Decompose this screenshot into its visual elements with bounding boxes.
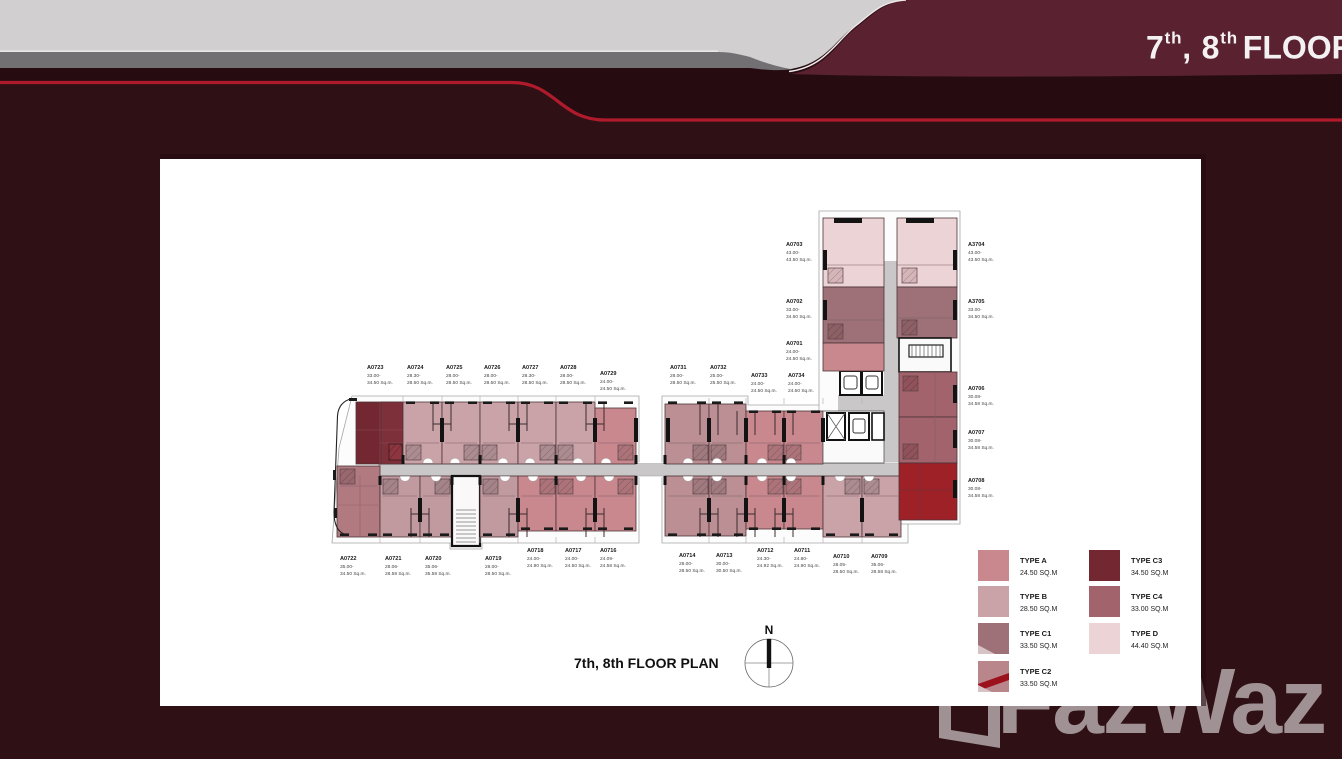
svg-text:A0718: A0718: [527, 548, 543, 554]
svg-text:28.58 Sq.m.: 28.58 Sq.m.: [871, 569, 897, 575]
svg-text:A0719: A0719: [485, 556, 501, 562]
svg-text:33.50 SQ.M: 33.50 SQ.M: [1020, 681, 1058, 688]
svg-text:A0729: A0729: [600, 371, 616, 377]
svg-text:28.30-: 28.30-: [407, 373, 421, 379]
svg-text:A0720: A0720: [425, 556, 441, 562]
svg-text:TYPE D: TYPE D: [1131, 629, 1159, 638]
svg-text:A0734: A0734: [788, 373, 805, 379]
svg-text:43.50 Sq.m.: 43.50 Sq.m.: [968, 257, 994, 263]
svg-text:28.50 Sq.m.: 28.50 Sq.m.: [522, 380, 548, 386]
svg-text:43.00-: 43.00-: [968, 250, 982, 256]
svg-text:35.58 Sq.m.: 35.58 Sq.m.: [425, 571, 451, 577]
svg-text:A0708: A0708: [968, 478, 984, 484]
svg-text:7th, 8th FLOOR PLAN: 7th, 8th FLOOR PLAN: [574, 655, 719, 671]
svg-text:A0713: A0713: [716, 553, 732, 559]
svg-text:28.00-: 28.00-: [484, 373, 498, 379]
svg-text:34.50 Sq.m.: 34.50 Sq.m.: [367, 380, 393, 386]
svg-text:28.50 Sq.m.: 28.50 Sq.m.: [446, 380, 472, 386]
svg-text:34.50 Sq.m.: 34.50 Sq.m.: [786, 314, 812, 320]
svg-text:28.05-: 28.05-: [833, 562, 847, 568]
svg-text:A0709: A0709: [871, 554, 887, 560]
svg-text:33.50 SQ.M: 33.50 SQ.M: [1020, 643, 1058, 650]
svg-text:24.58 Sq.m.: 24.58 Sq.m.: [600, 563, 626, 569]
svg-text:A3705: A3705: [968, 299, 984, 305]
svg-text:A0706: A0706: [968, 386, 984, 392]
svg-text:35.06-: 35.06-: [425, 564, 439, 570]
svg-text:28.50 Sq.m.: 28.50 Sq.m.: [679, 568, 705, 574]
svg-text:35.00-: 35.00-: [340, 564, 354, 570]
svg-text:24.92 Sq.m.: 24.92 Sq.m.: [757, 563, 783, 569]
svg-text:A0714: A0714: [679, 553, 696, 559]
svg-text:24.80-: 24.80-: [794, 556, 808, 562]
svg-text:A0717: A0717: [565, 548, 581, 554]
svg-text:43.00-: 43.00-: [786, 250, 800, 256]
svg-text:28.50 Sq.m.: 28.50 Sq.m.: [670, 380, 696, 386]
svg-text:A0724: A0724: [407, 365, 424, 371]
svg-text:44.40 SQ.M: 44.40 SQ.M: [1131, 643, 1169, 650]
svg-text:28.30-: 28.30-: [522, 373, 536, 379]
svg-text:TYPE A: TYPE A: [1020, 556, 1047, 565]
svg-text:28.06-: 28.06-: [385, 564, 399, 570]
svg-text:24.00-: 24.00-: [751, 381, 765, 387]
svg-text:30.08-: 30.08-: [968, 438, 982, 444]
svg-text:24.00-: 24.00-: [565, 556, 579, 562]
svg-text:24.90 Sq.m.: 24.90 Sq.m.: [794, 563, 820, 569]
svg-text:28.00-: 28.00-: [485, 564, 499, 570]
svg-text:A0707: A0707: [968, 430, 984, 436]
svg-text:28.50 Sq.m.: 28.50 Sq.m.: [407, 380, 433, 386]
svg-text:24.00-: 24.00-: [600, 379, 614, 385]
svg-text:34.50 Sq.m.: 34.50 Sq.m.: [340, 571, 366, 577]
svg-text:TYPE C4: TYPE C4: [1131, 592, 1163, 601]
svg-text:28.50 Sq.m.: 28.50 Sq.m.: [485, 571, 511, 577]
svg-text:28.00-: 28.00-: [679, 561, 693, 567]
svg-text:A0711: A0711: [794, 548, 810, 554]
svg-text:24.00-: 24.00-: [788, 381, 802, 387]
svg-text:A0702: A0702: [786, 299, 802, 305]
svg-text:A0725: A0725: [446, 365, 462, 371]
svg-text:A0721: A0721: [385, 556, 401, 562]
svg-text:A0722: A0722: [340, 556, 356, 562]
svg-text:24.50 Sq.m.: 24.50 Sq.m.: [600, 386, 626, 392]
svg-text:24.00-: 24.00-: [786, 349, 800, 355]
svg-text:A0723: A0723: [367, 365, 383, 371]
svg-text:43.50 Sq.m.: 43.50 Sq.m.: [786, 257, 812, 263]
svg-text:A0716: A0716: [600, 548, 616, 554]
svg-text:28.50 SQ.M: 28.50 SQ.M: [1020, 606, 1058, 613]
svg-text:24.90 Sq.m.: 24.90 Sq.m.: [527, 563, 553, 569]
svg-text:24.50 Sq.m.: 24.50 Sq.m.: [786, 356, 812, 362]
svg-text:A0703: A0703: [786, 242, 802, 248]
svg-text:24.50 Sq.m.: 24.50 Sq.m.: [565, 563, 591, 569]
svg-text:35.06-: 35.06-: [871, 562, 885, 568]
svg-text:33.00 SQ.M: 33.00 SQ.M: [1131, 606, 1169, 613]
svg-text:A0712: A0712: [757, 548, 773, 554]
svg-text:TYPE C3: TYPE C3: [1131, 556, 1162, 565]
svg-text:30.08-: 30.08-: [968, 486, 982, 492]
svg-text:TYPE C1: TYPE C1: [1020, 629, 1051, 638]
svg-text:34.50 Sq.m.: 34.50 Sq.m.: [968, 314, 994, 320]
svg-text:A0732: A0732: [710, 365, 726, 371]
svg-text:TYPE C2: TYPE C2: [1020, 667, 1051, 676]
svg-text:28.50 Sq.m.: 28.50 Sq.m.: [833, 569, 859, 575]
svg-text:A0728: A0728: [560, 365, 576, 371]
svg-text:TYPE B: TYPE B: [1020, 592, 1048, 601]
svg-text:28.58 Sq.m.: 28.58 Sq.m.: [385, 571, 411, 577]
svg-text:N: N: [765, 623, 774, 637]
svg-text:24.00-: 24.00-: [527, 556, 541, 562]
svg-text:30.00-: 30.00-: [716, 561, 730, 567]
svg-text:24.50 SQ.M: 24.50 SQ.M: [1020, 570, 1058, 577]
svg-text:A0726: A0726: [484, 365, 500, 371]
svg-text:A0733: A0733: [751, 373, 767, 379]
svg-text:28.50 Sq.m.: 28.50 Sq.m.: [484, 380, 510, 386]
svg-text:25.00-: 25.00-: [710, 373, 724, 379]
svg-text:24.09-: 24.09-: [600, 556, 614, 562]
svg-text:30.08-: 30.08-: [968, 394, 982, 400]
svg-text:A0710: A0710: [833, 554, 849, 560]
svg-text:33.00-: 33.00-: [786, 307, 800, 313]
svg-text:A0731: A0731: [670, 365, 686, 371]
svg-text:24.50 Sq.m.: 24.50 Sq.m.: [751, 388, 777, 394]
svg-text:A0701: A0701: [786, 341, 802, 347]
svg-text:33.00-: 33.00-: [968, 307, 982, 313]
svg-text:33.00-: 33.00-: [367, 373, 381, 379]
svg-text:34.58 Sq.m.: 34.58 Sq.m.: [968, 401, 994, 407]
svg-text:28.00-: 28.00-: [670, 373, 684, 379]
svg-text:24.30-: 24.30-: [757, 556, 771, 562]
svg-text:34.50 SQ.M: 34.50 SQ.M: [1131, 570, 1169, 577]
svg-text:34.58 Sq.m.: 34.58 Sq.m.: [968, 493, 994, 499]
svg-text:A3704: A3704: [968, 242, 985, 248]
svg-text:28.00-: 28.00-: [446, 373, 460, 379]
svg-text:25.50 Sq.m.: 25.50 Sq.m.: [710, 380, 736, 386]
svg-text:28.50 Sq.m.: 28.50 Sq.m.: [560, 380, 586, 386]
svg-text:34.58 Sq.m.: 34.58 Sq.m.: [968, 445, 994, 451]
svg-text:24.50 Sq.m.: 24.50 Sq.m.: [788, 388, 814, 394]
svg-text:A0727: A0727: [522, 365, 538, 371]
svg-text:28.00-: 28.00-: [560, 373, 574, 379]
svg-text:30.50 Sq.m.: 30.50 Sq.m.: [716, 568, 742, 574]
